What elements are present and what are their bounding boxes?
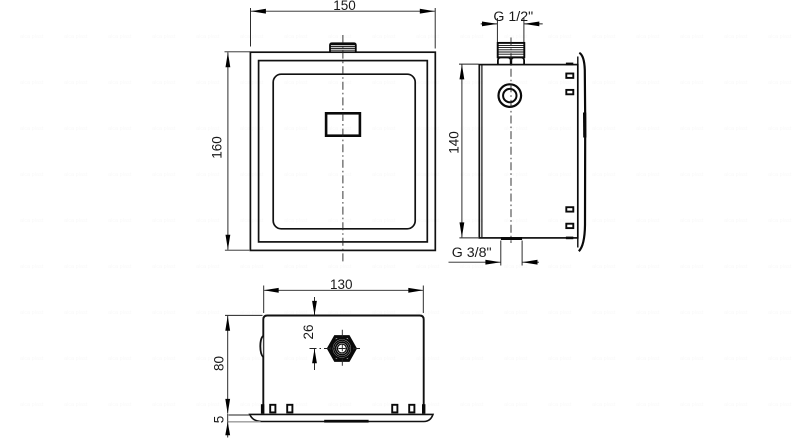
svg-text:26: 26	[301, 324, 316, 339]
svg-text:150: 150	[333, 0, 356, 13]
svg-text:G 3/8": G 3/8"	[452, 245, 492, 261]
svg-text:130: 130	[330, 277, 353, 292]
svg-text:G 1/2": G 1/2"	[493, 9, 533, 25]
svg-text:5: 5	[211, 416, 226, 424]
svg-text:140: 140	[447, 131, 462, 154]
svg-text:160: 160	[210, 136, 225, 159]
svg-text:80: 80	[212, 356, 227, 371]
